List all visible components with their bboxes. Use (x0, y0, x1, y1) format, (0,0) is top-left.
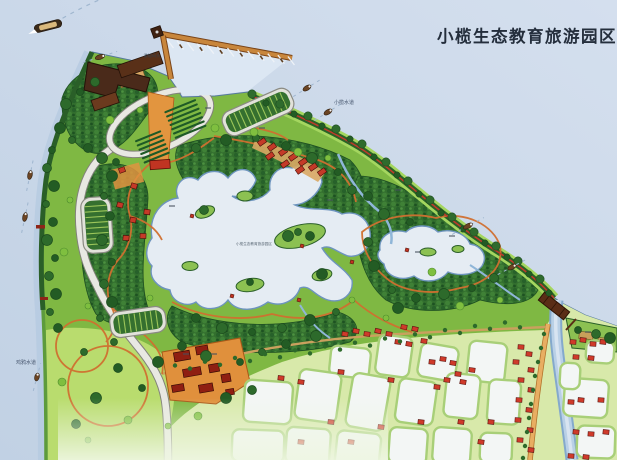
micro-label-mark (585, 331, 591, 332)
village-building (588, 355, 594, 360)
tree (250, 128, 258, 136)
tree (575, 327, 582, 334)
tree (470, 228, 478, 236)
tree (469, 285, 476, 292)
parking-lot (80, 196, 114, 254)
village-building (434, 384, 440, 389)
village-building (342, 331, 349, 336)
tree (77, 89, 84, 96)
village-building (517, 438, 523, 443)
tree (282, 340, 291, 349)
tree (192, 314, 201, 323)
village-building (588, 432, 594, 437)
village-building (460, 379, 467, 384)
village-building (603, 429, 609, 434)
tree (291, 111, 297, 117)
micro-label-mark (395, 189, 401, 190)
tree (107, 171, 118, 182)
tree (412, 294, 421, 303)
village-building (421, 338, 428, 343)
roadside-tree (263, 352, 267, 356)
tree (51, 289, 62, 300)
tree (482, 240, 488, 246)
tree (295, 229, 302, 236)
roadside-tree (488, 327, 492, 331)
tree (178, 342, 187, 351)
tree (349, 297, 355, 303)
village-building (450, 360, 457, 365)
tree (192, 144, 201, 153)
lakeside-pavilion (300, 244, 304, 248)
tree (101, 193, 108, 200)
tree (55, 123, 66, 134)
roadside-tree (398, 339, 402, 343)
tree (248, 90, 256, 98)
tree (294, 148, 302, 156)
tree (42, 235, 53, 246)
tree (278, 324, 287, 333)
map-title: 小榄生态教育旅游园区 (437, 26, 617, 46)
tree (319, 123, 325, 129)
lakeside-pavilion (297, 298, 301, 302)
tree (605, 333, 616, 344)
tree (107, 297, 118, 308)
tree (69, 137, 76, 144)
tree (139, 385, 146, 392)
village-building (444, 377, 451, 382)
tree (490, 274, 499, 283)
lake-island (420, 248, 436, 256)
tree (428, 268, 436, 276)
pavilion-roof (140, 233, 146, 238)
micro-label-mark (327, 199, 333, 200)
pavilion-roof (116, 202, 123, 208)
village-building (570, 340, 576, 345)
tree (200, 206, 209, 215)
tree (333, 309, 340, 316)
tree (249, 329, 256, 336)
tree (84, 144, 93, 153)
village-building (518, 345, 524, 350)
roadside-tree (293, 348, 297, 352)
roadside-tree (323, 344, 327, 348)
roadside-tree (443, 328, 447, 332)
tree (221, 135, 232, 146)
village-building (598, 398, 604, 403)
tree (364, 238, 373, 247)
lakeside-pavilion (350, 260, 354, 264)
village-building (429, 359, 435, 364)
tree (106, 116, 114, 124)
fish-pond (559, 362, 580, 389)
tree (592, 330, 601, 339)
village-building (386, 331, 393, 336)
masterplan-map: 小榄生态教育旅游园区 小榄水道 鸡鸦水道 游船码头 小榄生态教育旅游园区 (0, 0, 617, 460)
tree (111, 339, 118, 346)
village-building (528, 367, 534, 372)
west-dock (36, 225, 45, 229)
tree (67, 197, 73, 203)
tree (393, 303, 404, 314)
roadside-tree (218, 363, 222, 367)
village-building (573, 355, 579, 360)
village-building (583, 454, 589, 459)
roadside-tree (368, 343, 372, 347)
tree (448, 213, 456, 221)
tree (109, 259, 116, 266)
fish-pond (388, 427, 428, 460)
tree (47, 309, 54, 316)
lakeside-pavilion (190, 214, 194, 218)
lake-island (452, 246, 464, 253)
village-building (518, 378, 524, 383)
tree (369, 261, 380, 272)
roadside-tree (529, 402, 533, 406)
tree (526, 271, 532, 277)
tree (335, 169, 342, 176)
roadside-tree (539, 346, 543, 350)
village-building (440, 356, 447, 361)
tree (546, 290, 552, 296)
micro-label-mark (183, 353, 189, 354)
tree (114, 364, 123, 373)
tower-roof (156, 31, 159, 34)
tree (304, 112, 312, 120)
tree (100, 280, 109, 289)
roadside-tree (233, 356, 237, 360)
lake-island (182, 262, 198, 271)
tree (147, 295, 153, 301)
tree (91, 78, 100, 87)
tree (456, 302, 464, 310)
lake-island (237, 191, 253, 201)
village-building (528, 447, 534, 452)
tree (97, 235, 108, 246)
village-building (364, 331, 371, 336)
tree (438, 210, 444, 216)
village-building (573, 429, 579, 434)
tree (404, 177, 412, 185)
village-building (412, 326, 419, 332)
tree (263, 100, 269, 106)
tree (504, 254, 510, 260)
roadside-tree (521, 456, 525, 460)
village-building (513, 360, 519, 365)
tree (49, 147, 56, 154)
tree (106, 212, 115, 221)
village-building (298, 379, 305, 384)
lake-area-label: 小榄生态教育旅游园区 (236, 241, 272, 246)
tree (307, 153, 318, 164)
village-building (388, 377, 395, 382)
tree (43, 201, 50, 208)
village-building (353, 328, 360, 333)
fish-pond (394, 378, 438, 427)
tree (371, 154, 377, 160)
tree (317, 269, 328, 280)
roadside-tree (413, 332, 417, 336)
roadside-tree (428, 335, 432, 339)
tree (248, 386, 257, 395)
roadside-tree (338, 347, 342, 351)
tree (153, 357, 164, 368)
roadside-tree (248, 359, 252, 363)
roadside-tree (173, 363, 177, 367)
gate-pavilion (150, 159, 171, 169)
roadside-tree (278, 355, 282, 359)
tree (332, 125, 340, 133)
micro-label-mark (259, 127, 265, 128)
pavilion-roof (123, 235, 129, 241)
fish-pond (374, 334, 413, 378)
west-dock (40, 297, 48, 300)
tree (497, 297, 503, 303)
pavilion-roof (130, 217, 137, 223)
tree (416, 191, 422, 197)
tree (45, 272, 54, 281)
tree (305, 315, 316, 326)
roadside-tree (308, 351, 312, 355)
tree (311, 331, 322, 342)
tree (394, 172, 400, 178)
tree (211, 124, 219, 132)
watercolor-wash (58, 398, 388, 460)
tree (113, 159, 120, 166)
map-canvas: 小榄生态教育旅游园区 小榄水道 鸡鸦水道 游船码头 小榄生态教育旅游园区 (0, 0, 617, 460)
fish-pond (576, 425, 615, 458)
tree (382, 158, 390, 166)
roadside-tree (525, 430, 529, 434)
roadside-tree (542, 332, 546, 336)
tree (379, 209, 390, 220)
lakeside-pavilion (405, 248, 409, 252)
tree (52, 255, 59, 262)
waterway-label: 小榄水道 (334, 99, 354, 106)
roadside-tree (473, 324, 477, 328)
micro-label-mark (205, 107, 211, 108)
tree (85, 303, 91, 309)
tree (97, 315, 104, 322)
roadside-tree (383, 336, 387, 340)
roadside-tree (353, 341, 357, 345)
village-building (526, 351, 532, 356)
village-building (578, 397, 584, 402)
tree (61, 99, 72, 110)
micro-label-mark (415, 251, 421, 252)
village-building (568, 400, 574, 405)
roadside-tree (458, 331, 462, 335)
roadside-tree (523, 444, 527, 448)
tree (407, 219, 414, 226)
village-building (515, 418, 521, 423)
roadside-tree (518, 325, 522, 329)
fish-pond (479, 432, 512, 460)
roadside-tree (536, 360, 540, 364)
tree (348, 186, 357, 195)
village-building (458, 419, 465, 424)
marina-label: 游船码头 (144, 52, 161, 59)
tree (358, 140, 366, 148)
roadside-tree (503, 320, 507, 324)
tree (383, 315, 389, 321)
tree (49, 218, 58, 227)
tree (439, 289, 450, 300)
waterway-label: 鸡鸦水道 (16, 359, 36, 366)
roadside-tree (533, 374, 537, 378)
tree (389, 287, 396, 294)
tree (536, 275, 544, 283)
village-building (526, 407, 532, 412)
tree (282, 142, 291, 151)
tree (237, 359, 244, 366)
roadside-tree (527, 416, 531, 420)
village-building (568, 454, 574, 459)
micro-label-mark (449, 235, 455, 236)
micro-label-mark (169, 205, 175, 206)
tree (492, 242, 500, 250)
village-building (488, 419, 494, 424)
lakeside-pavilion (230, 294, 234, 298)
tree (306, 232, 315, 241)
tree (283, 231, 294, 242)
tree (49, 181, 60, 192)
tree (276, 100, 284, 108)
village-building (406, 341, 413, 346)
tree (217, 323, 228, 334)
tree (347, 136, 353, 142)
tree (97, 153, 108, 164)
tree (60, 248, 68, 256)
pavilion-roof (144, 209, 151, 215)
service-building (221, 373, 231, 382)
village-building (590, 342, 596, 347)
roadside-tree (531, 388, 535, 392)
tree (81, 349, 88, 356)
fish-pond (432, 427, 472, 460)
tree (43, 164, 52, 173)
tree (247, 279, 254, 286)
village-building (469, 367, 476, 372)
village-building (580, 337, 586, 342)
village-building (375, 328, 382, 334)
roadside-tree (188, 366, 192, 370)
tree (58, 378, 66, 386)
roadside-tree (203, 360, 207, 364)
village-building (516, 398, 522, 403)
tree (426, 196, 434, 204)
tree (325, 155, 331, 161)
village-building (278, 375, 284, 380)
village-building (478, 439, 485, 444)
village-building (401, 324, 408, 329)
village-building (418, 419, 424, 424)
tree (137, 107, 143, 113)
village-building (338, 369, 344, 374)
tree (54, 324, 63, 333)
tree (364, 192, 373, 201)
micro-label-mark (211, 353, 217, 354)
village-building (455, 371, 461, 376)
